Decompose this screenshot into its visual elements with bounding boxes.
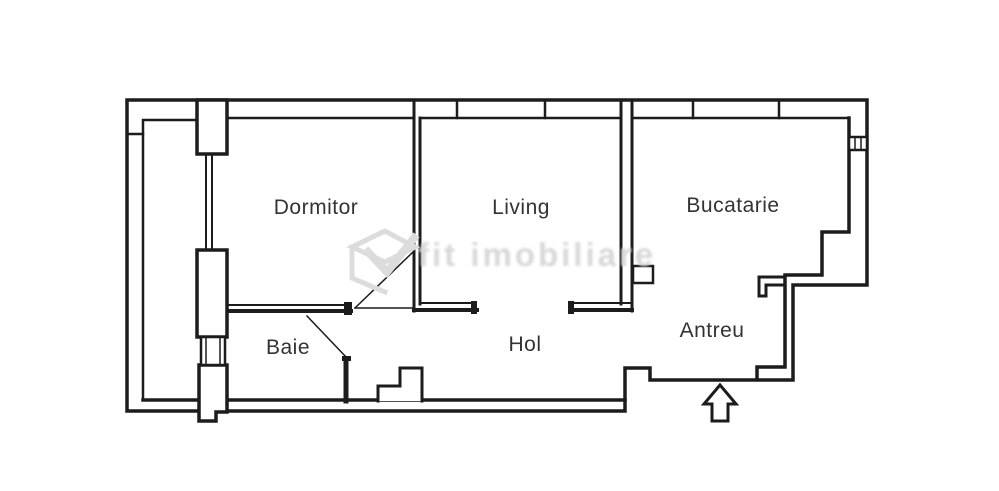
room-label-bucatarie: Bucatarie <box>686 194 779 218</box>
wall-baie-right <box>342 356 351 401</box>
wall-baie-top <box>228 302 352 315</box>
room-label-hol: Hol <box>508 333 541 357</box>
watermark-logo-icon <box>352 231 415 292</box>
balcony-pillars <box>197 100 227 421</box>
wall-living-hol <box>414 301 632 314</box>
steps <box>378 368 422 401</box>
room-label-antreu: Antreu <box>680 319 745 343</box>
room-label-living: Living <box>492 196 550 220</box>
room-label-baie: Baie <box>266 336 310 360</box>
antreu-wall-stub <box>759 277 785 296</box>
wall-dormitor-living <box>414 100 420 311</box>
room-label-dormitor: Dormitor <box>274 196 359 220</box>
floor-plan: Dormitor Living Bucatarie Baie Hol Antre… <box>0 0 999 491</box>
window-mullions <box>457 100 779 118</box>
wall-living-bucatarie <box>621 100 632 311</box>
watermark-text: fit imobiliare <box>418 236 656 274</box>
entrance-arrow-icon <box>704 385 736 421</box>
door-baie <box>307 316 346 357</box>
vent-shaft <box>849 137 867 150</box>
